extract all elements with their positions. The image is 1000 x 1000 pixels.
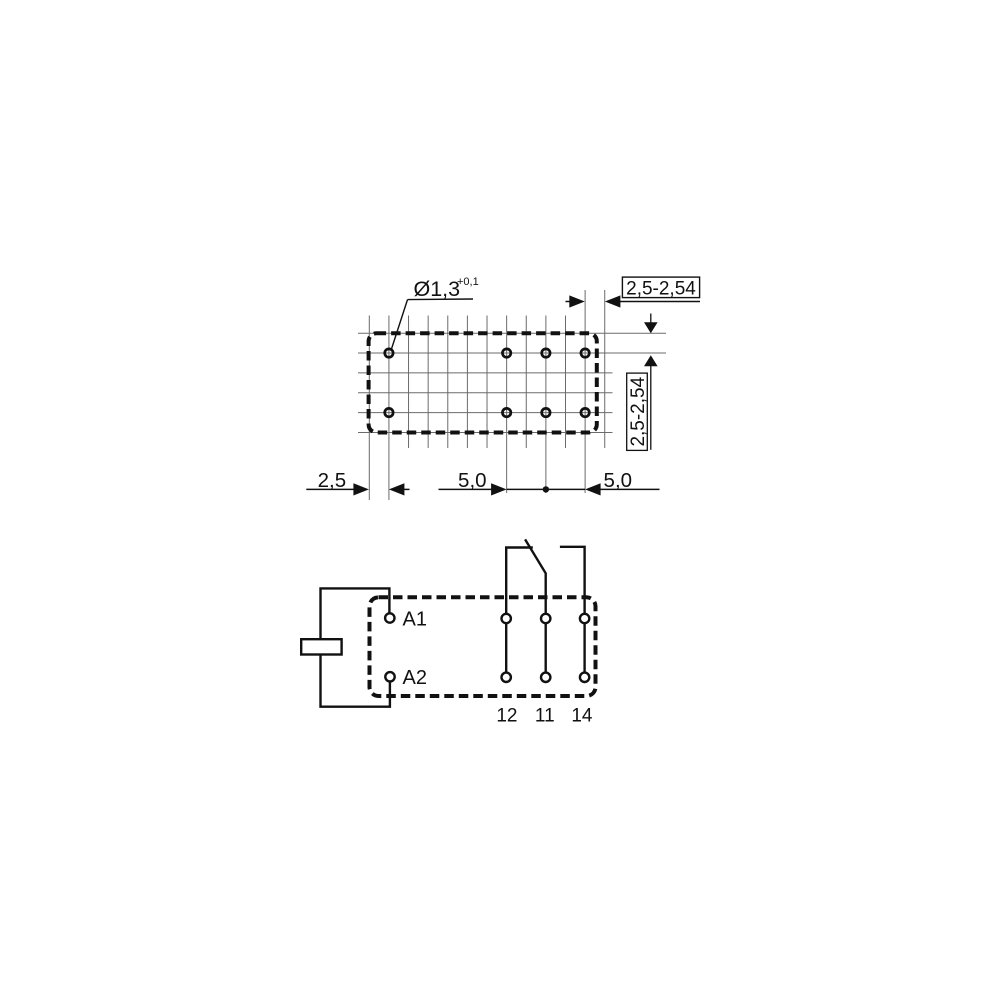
svg-text:5,0: 5,0	[458, 469, 487, 492]
svg-text:14: 14	[571, 706, 593, 727]
svg-text:5,0: 5,0	[604, 469, 633, 492]
svg-text:2,5-2,54: 2,5-2,54	[626, 279, 696, 300]
svg-text:A2: A2	[403, 667, 427, 689]
svg-text:2,5-2,54: 2,5-2,54	[628, 376, 649, 446]
svg-text:11: 11	[535, 706, 555, 727]
svg-text:A1: A1	[403, 609, 427, 631]
svg-text:+0,1: +0,1	[457, 276, 479, 288]
svg-text:Ø1,3: Ø1,3	[414, 277, 461, 301]
svg-text:2,5: 2,5	[318, 469, 347, 492]
svg-text:12: 12	[496, 706, 517, 727]
